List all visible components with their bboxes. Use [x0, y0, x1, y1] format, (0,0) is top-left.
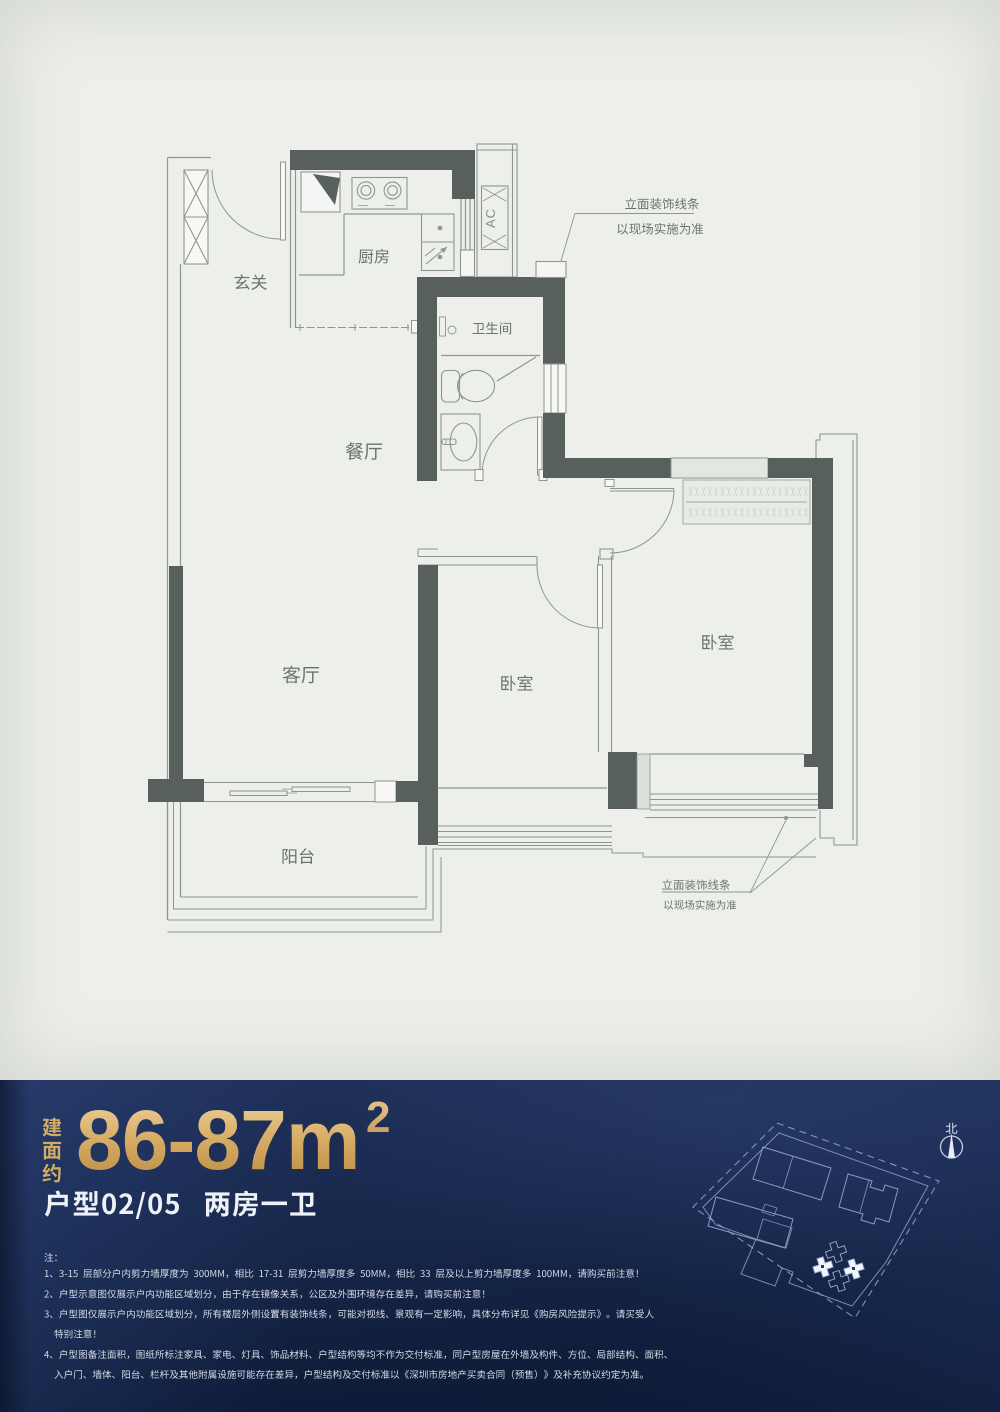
svg-text:AC: AC: [483, 208, 498, 228]
